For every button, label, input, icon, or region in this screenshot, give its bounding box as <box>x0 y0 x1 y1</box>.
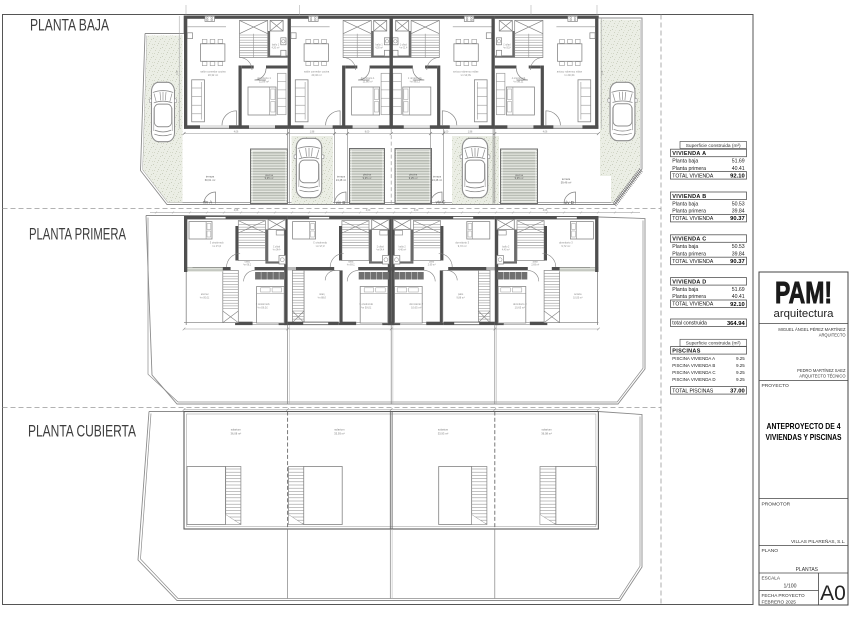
svg-text:dormitorio 2: dormitorio 2 <box>409 302 423 306</box>
svg-text:33,93 m²: 33,93 m² <box>334 432 345 436</box>
svg-text:Superficie construida (m²): Superficie construida (m²) <box>686 341 741 347</box>
svg-text:total construida: total construida <box>672 321 707 327</box>
svg-text:4,40 m²: 4,40 m² <box>272 249 280 252</box>
svg-text:VILLAS PILAREÑAS, S.L.: VILLAS PILAREÑAS, S.L. <box>791 538 845 544</box>
svg-text:baño 1: baño 1 <box>399 44 407 47</box>
svg-text:39.84: 39.84 <box>732 251 745 257</box>
svg-text:4,00: 4,00 <box>366 210 371 212</box>
svg-text:ANTEPROYECTO DE 4: ANTEPROYECTO DE 4 <box>767 421 841 431</box>
svg-text:50.53: 50.53 <box>732 244 745 250</box>
svg-text:PROYECTO: PROYECTO <box>762 383 790 389</box>
svg-text:37.00: 37.00 <box>730 388 745 394</box>
svg-text:dormitorio 3: dormitorio 3 <box>313 241 327 245</box>
svg-text:paso: paso <box>533 262 539 264</box>
svg-text:dormitorio 3: dormitorio 3 <box>209 241 223 245</box>
svg-text:PISCINA VIVIENDA D: PISCINA VIVIENDA D <box>672 377 715 382</box>
svg-text:PEDRO MARTÍNEZ SAEZ: PEDRO MARTÍNEZ SAEZ <box>797 368 846 373</box>
svg-text:baño 1: baño 1 <box>376 44 384 47</box>
svg-text:PISCINAS: PISCINAS <box>672 348 700 354</box>
svg-text:1/100: 1/100 <box>784 584 797 590</box>
svg-text:dormitorio 1: dormitorio 1 <box>257 76 271 80</box>
svg-text:4,20 m²: 4,20 m² <box>375 47 383 50</box>
svg-text:4,06: 4,06 <box>234 132 239 134</box>
svg-text:VIVIENDA B: VIVIENDA B <box>672 194 706 200</box>
svg-text:dormitorio 1: dormitorio 1 <box>361 76 375 80</box>
svg-text:364.94: 364.94 <box>727 321 746 327</box>
svg-text:dormitorio 2: dormitorio 2 <box>359 302 373 306</box>
svg-text:terraza: terraza <box>206 175 215 179</box>
svg-text:8,00: 8,00 <box>365 132 370 134</box>
svg-text:51.69: 51.69 <box>732 159 745 165</box>
svg-text:Planta baja: Planta baja <box>672 244 698 250</box>
svg-text:terraza: terraza <box>562 177 571 181</box>
svg-text:Planta baja: Planta baja <box>672 159 698 165</box>
svg-text:PISCINA VIVIENDA B: PISCINA VIVIENDA B <box>672 363 715 368</box>
svg-text:paso: paso <box>244 262 250 264</box>
svg-text:PAM!: PAM! <box>775 275 832 310</box>
svg-text:solarium: solarium <box>231 428 242 432</box>
svg-text:4,06: 4,06 <box>234 210 239 212</box>
svg-text:9.25: 9.25 <box>736 356 745 361</box>
svg-text:piscina: piscina <box>363 173 372 177</box>
svg-text:9,72 m²: 9,72 m² <box>316 244 325 248</box>
svg-text:39.84: 39.84 <box>732 209 745 215</box>
svg-text:piscina: piscina <box>265 173 274 177</box>
svg-text:7,08: 7,08 <box>602 70 604 75</box>
svg-text:ESCALA: ESCALA <box>762 576 781 581</box>
svg-text:20,32 m²: 20,32 m² <box>461 73 471 77</box>
svg-text:9,72 m²: 9,72 m² <box>212 244 221 248</box>
svg-text:11,86 m²: 11,86 m² <box>259 80 269 84</box>
svg-text:11,86 m²: 11,86 m² <box>513 80 523 84</box>
svg-text:viv C: viv C <box>436 199 446 204</box>
svg-text:solarium: solarium <box>334 428 345 432</box>
svg-text:VIVIENDA D: VIVIENDA D <box>672 279 706 285</box>
svg-text:baño 2: baño 2 <box>399 246 407 249</box>
svg-text:11,86 m²: 11,86 m² <box>363 80 373 84</box>
svg-text:20,32 m²: 20,32 m² <box>564 73 574 77</box>
svg-text:24,48 m²: 24,48 m² <box>432 178 442 182</box>
svg-text:terraza: terraza <box>433 175 442 179</box>
svg-text:dormitorio 2: dormitorio 2 <box>513 302 527 306</box>
svg-text:arquitectura: arquitectura <box>774 308 835 320</box>
svg-text:4,40 m²: 4,40 m² <box>376 249 384 252</box>
svg-text:Planta baja: Planta baja <box>672 201 698 207</box>
svg-text:piscina: piscina <box>515 173 524 177</box>
svg-text:terraza: terraza <box>337 175 346 179</box>
svg-text:9,88 m²: 9,88 m² <box>457 297 465 300</box>
svg-text:9,25 m²: 9,25 m² <box>409 176 418 180</box>
svg-text:MIGUEL ÁNGEL PÉREZ MARTÍNEZ: MIGUEL ÁNGEL PÉREZ MARTÍNEZ <box>778 327 846 332</box>
svg-text:salón comedor cocina: salón comedor cocina <box>304 70 330 74</box>
svg-text:9,72 m²: 9,72 m² <box>458 244 467 248</box>
svg-text:2,69 m²: 2,69 m² <box>243 264 251 267</box>
svg-text:2,69 m²: 2,69 m² <box>531 264 539 267</box>
svg-text:baño 2: baño 2 <box>272 246 280 249</box>
svg-text:20,32 m²: 20,32 m² <box>311 73 321 77</box>
svg-text:TOTAL VIVIENDA: TOTAL VIVIENDA <box>672 259 714 265</box>
svg-text:VIVIENDA C: VIVIENDA C <box>672 237 706 243</box>
svg-text:PROMOTOR: PROMOTOR <box>762 502 791 508</box>
svg-text:9,25 m²: 9,25 m² <box>515 176 524 180</box>
svg-text:2,69 m²: 2,69 m² <box>347 264 355 267</box>
svg-text:4,00: 4,00 <box>414 210 419 212</box>
svg-text:baño 1: baño 1 <box>503 44 511 47</box>
svg-text:1,98: 1,98 <box>468 132 473 134</box>
svg-text:33,93 m²: 33,93 m² <box>438 432 449 436</box>
svg-text:ARQUITECTO TÉCNICO: ARQUITECTO TÉCNICO <box>799 374 845 379</box>
svg-text:Planta primera: Planta primera <box>672 166 706 172</box>
svg-text:Planta primera: Planta primera <box>672 209 706 215</box>
svg-text:PLANTAS: PLANTAS <box>796 567 819 573</box>
svg-text:92.10: 92.10 <box>730 173 745 179</box>
svg-text:baño 1: baño 1 <box>272 44 280 47</box>
svg-text:10,65 m²: 10,65 m² <box>515 306 525 310</box>
svg-text:PLANTA CUBIERTA: PLANTA CUBIERTA <box>28 423 136 441</box>
svg-text:8,00: 8,00 <box>444 132 449 134</box>
svg-text:1,98: 1,98 <box>310 132 315 134</box>
svg-text:2,69 m²: 2,69 m² <box>428 264 436 267</box>
svg-text:FECHA PROYECTO: FECHA PROYECTO <box>762 593 806 598</box>
svg-text:10,05 m²: 10,05 m² <box>200 297 210 300</box>
svg-text:90.37: 90.37 <box>730 259 745 265</box>
svg-text:Planta baja: Planta baja <box>672 287 698 293</box>
svg-text:36,08 m²: 36,08 m² <box>230 432 241 436</box>
svg-text:4,40 m²: 4,40 m² <box>398 249 406 252</box>
svg-text:Planta primera: Planta primera <box>672 251 706 257</box>
svg-text:92.10: 92.10 <box>730 302 745 308</box>
svg-text:TOTAL VIVIENDA: TOTAL VIVIENDA <box>672 216 714 222</box>
svg-text:20,32 m²: 20,32 m² <box>208 73 218 77</box>
svg-text:4,20 m²: 4,20 m² <box>272 47 280 50</box>
svg-text:9.25: 9.25 <box>736 370 745 375</box>
svg-text:90.37: 90.37 <box>730 216 745 222</box>
svg-text:59,46 m²: 59,46 m² <box>561 181 572 185</box>
svg-text:dormitorio 3: dormitorio 3 <box>455 241 469 245</box>
svg-text:10,65 m²: 10,65 m² <box>257 306 267 310</box>
svg-text:TOTAL VIVIENDA: TOTAL VIVIENDA <box>672 302 714 308</box>
svg-text:ARQUITECTO: ARQUITECTO <box>819 333 846 338</box>
svg-text:PLANTA PRIMERA: PLANTA PRIMERA <box>29 226 126 244</box>
svg-text:4,06: 4,06 <box>543 210 548 212</box>
svg-text:salón comedor cocina: salón comedor cocina <box>556 70 582 74</box>
svg-text:PISCINA VIVIENDA A: PISCINA VIVIENDA A <box>672 356 715 361</box>
svg-text:Planta primera: Planta primera <box>672 294 706 300</box>
svg-text:VIVIENDA A: VIVIENDA A <box>672 151 706 157</box>
svg-text:9,88 m²: 9,88 m² <box>318 297 326 300</box>
svg-text:salón comedor cocina: salón comedor cocina <box>453 70 479 74</box>
svg-text:paso: paso <box>347 262 353 264</box>
svg-text:PLANO: PLANO <box>762 548 779 554</box>
svg-text:9,72 m²: 9,72 m² <box>561 244 570 248</box>
svg-text:4,20 m²: 4,20 m² <box>399 47 407 50</box>
svg-text:dormitorio 1: dormitorio 1 <box>407 76 421 80</box>
svg-text:dormitorio 2: dormitorio 2 <box>255 302 269 306</box>
svg-text:viv B: viv B <box>336 200 346 205</box>
svg-text:baño 2: baño 2 <box>376 246 384 249</box>
svg-text:9.25: 9.25 <box>736 363 745 368</box>
svg-text:9,25 m²: 9,25 m² <box>265 176 274 180</box>
svg-text:dormitorio 3: dormitorio 3 <box>559 241 573 245</box>
svg-text:TOTAL VIVIENDA: TOTAL VIVIENDA <box>672 173 714 179</box>
svg-text:VIVIENDAS Y PISCINAS: VIVIENDAS Y PISCINAS <box>766 432 842 442</box>
svg-text:60,61 m²: 60,61 m² <box>205 178 216 182</box>
svg-text:4,40 m²: 4,40 m² <box>502 249 510 252</box>
svg-text:4,06: 4,06 <box>543 132 548 134</box>
svg-text:9,25 m²: 9,25 m² <box>363 176 372 180</box>
svg-text:salón comedor cocina: salón comedor cocina <box>200 70 226 74</box>
svg-text:7,08: 7,08 <box>177 70 179 75</box>
svg-text:solarium: solarium <box>542 428 553 432</box>
svg-text:viv D: viv D <box>564 200 574 205</box>
svg-text:dormitorio 1: dormitorio 1 <box>511 76 525 80</box>
svg-text:10,65 m²: 10,65 m² <box>411 306 421 310</box>
svg-text:PLANTA BAJA: PLANTA BAJA <box>30 17 109 35</box>
svg-text:4,20 m²: 4,20 m² <box>503 47 511 50</box>
svg-text:piscina: piscina <box>409 173 418 177</box>
svg-text:baño 2: baño 2 <box>502 246 510 249</box>
svg-text:paso: paso <box>429 262 435 264</box>
svg-text:10,05 m²: 10,05 m² <box>573 297 583 300</box>
svg-text:50.53: 50.53 <box>732 201 745 207</box>
svg-text:10,65 m²: 10,65 m² <box>361 306 371 310</box>
svg-text:TOTAL PISCINAS: TOTAL PISCINAS <box>672 388 714 394</box>
svg-text:PISCINA VIVIENDA C: PISCINA VIVIENDA C <box>672 370 715 375</box>
svg-text:24,48 m²: 24,48 m² <box>336 178 346 182</box>
svg-text:FEBRERO 2025: FEBRERO 2025 <box>762 600 797 605</box>
svg-text:9.25: 9.25 <box>736 377 745 382</box>
svg-text:Superficie construida (m²): Superficie construida (m²) <box>686 143 741 149</box>
svg-text:40.41: 40.41 <box>732 166 745 172</box>
svg-text:11,86 m²: 11,86 m² <box>410 80 420 84</box>
svg-text:36,08 m²: 36,08 m² <box>541 432 552 436</box>
svg-text:A0: A0 <box>820 582 846 605</box>
svg-text:40.41: 40.41 <box>732 294 745 300</box>
svg-text:solarium: solarium <box>438 428 449 432</box>
svg-text:51.69: 51.69 <box>732 287 745 293</box>
